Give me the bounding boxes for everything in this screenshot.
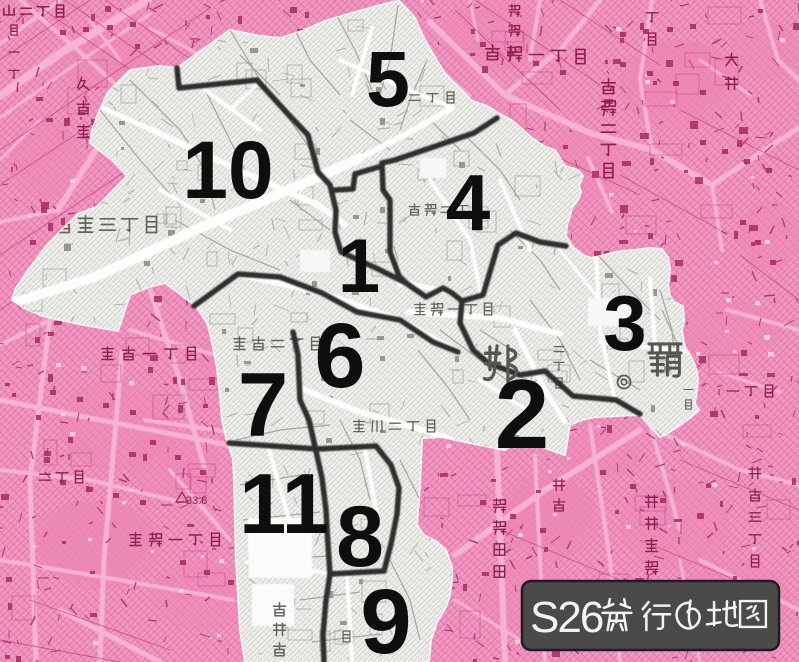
svg-text:33.8: 33.8 <box>186 495 207 507</box>
svg-text:5: 5 <box>366 34 410 123</box>
svg-text:6: 6 <box>314 305 365 407</box>
svg-text:11: 11 <box>239 457 329 552</box>
svg-text:9: 9 <box>360 571 411 662</box>
svg-text:2: 2 <box>495 359 550 469</box>
svg-text:7: 7 <box>238 355 289 456</box>
svg-text:1: 1 <box>338 224 380 309</box>
svg-text:10: 10 <box>182 125 273 216</box>
svg-text:3: 3 <box>603 279 646 367</box>
svg-text:S26: S26 <box>530 593 603 642</box>
svg-text:4: 4 <box>446 158 491 247</box>
